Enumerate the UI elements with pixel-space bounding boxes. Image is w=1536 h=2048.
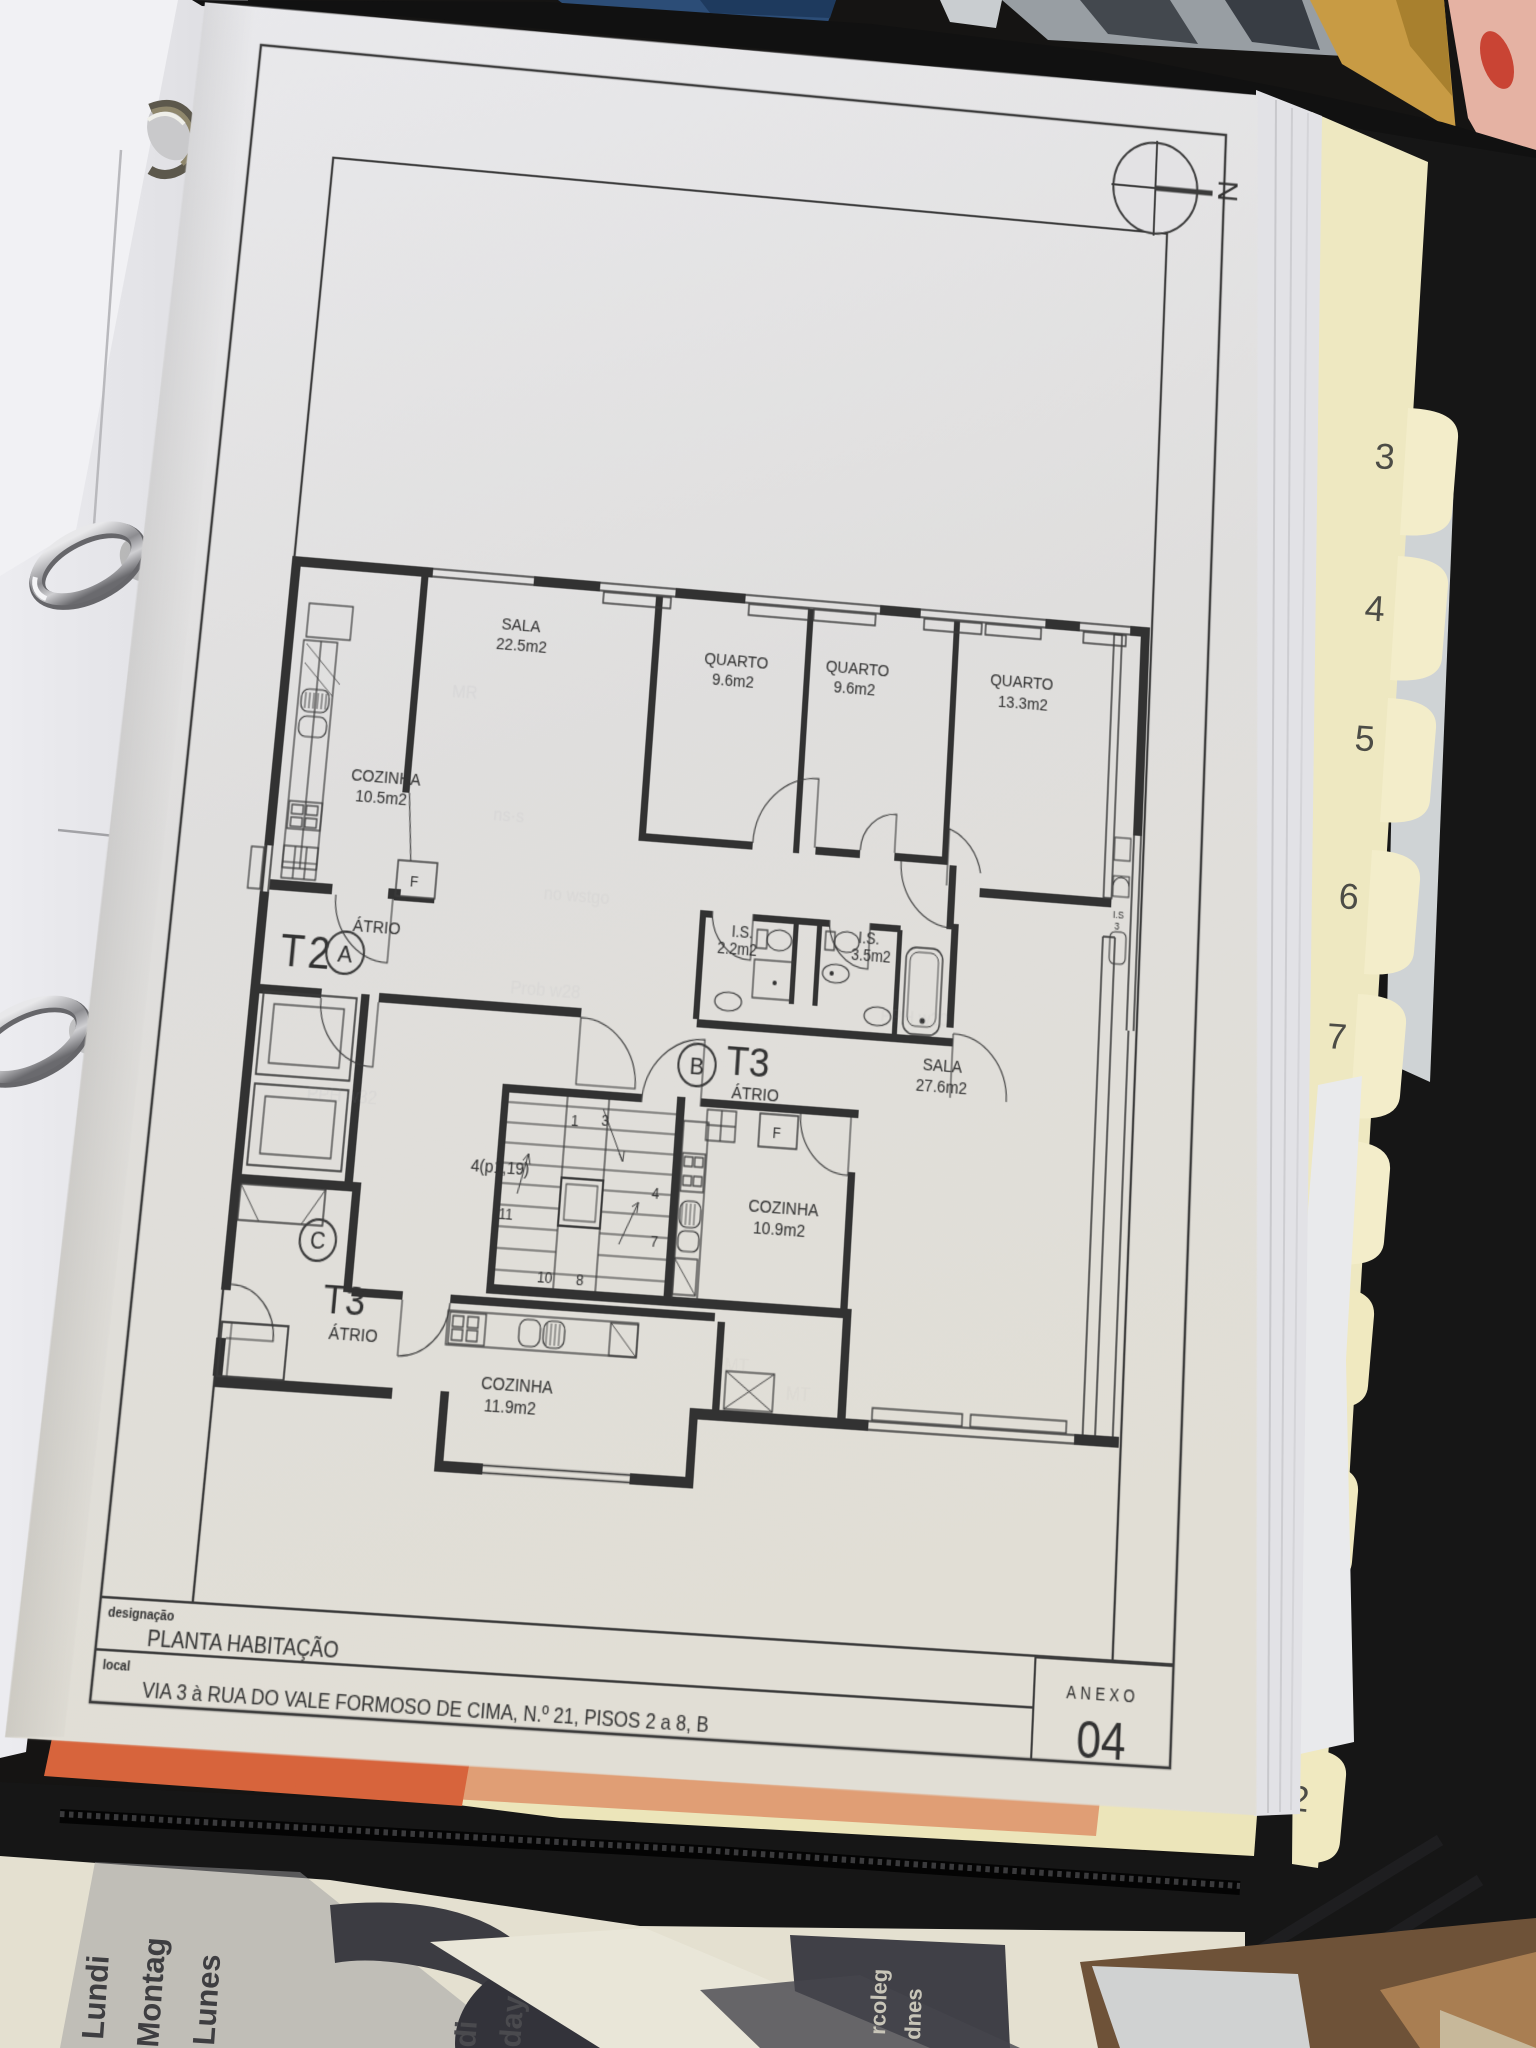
svg-text:local: local — [102, 1658, 131, 1675]
svg-text:11: 11 — [498, 1205, 514, 1224]
svg-text:ÁTRIO: ÁTRIO — [328, 1323, 379, 1347]
svg-text:4: 4 — [651, 1184, 660, 1202]
svg-text:4(p1,19): 4(p1,19) — [470, 1156, 530, 1180]
svg-text:10.9m2: 10.9m2 — [752, 1218, 805, 1242]
svg-text:3.5m2: 3.5m2 — [851, 946, 892, 967]
svg-text:I.S: I.S — [1113, 909, 1124, 921]
svg-text:MT: MT — [785, 1383, 811, 1406]
svg-text:ns·s: ns·s — [493, 804, 526, 827]
svg-text:10: 10 — [536, 1268, 553, 1287]
svg-text:T3: T3 — [725, 1036, 771, 1087]
svg-text:7: 7 — [650, 1232, 659, 1250]
svg-text:T3: T3 — [321, 1277, 367, 1326]
svg-text:Lunes: Lunes — [186, 1953, 227, 2047]
svg-text:11.9m2: 11.9m2 — [483, 1395, 537, 1419]
svg-text:day: day — [494, 1994, 531, 2048]
svg-text:3: 3 — [1373, 435, 1396, 477]
svg-text:22.5m2: 22.5m2 — [495, 635, 547, 658]
svg-text:9.6m2: 9.6m2 — [833, 678, 876, 700]
svg-text:ÁTRIO: ÁTRIO — [352, 916, 401, 939]
svg-text:ÁTRIO: ÁTRIO — [731, 1083, 780, 1106]
svg-text:1: 1 — [570, 1112, 579, 1130]
svg-text:9.6m2: 9.6m2 — [711, 670, 754, 692]
svg-text:3: 3 — [1114, 920, 1119, 932]
svg-text:Lundi: Lundi — [75, 1954, 116, 2041]
svg-text:27.6m2: 27.6m2 — [915, 1076, 967, 1099]
svg-text:5: 5 — [1353, 717, 1376, 759]
svg-text:8: 8 — [575, 1271, 584, 1289]
svg-text:4: 4 — [1363, 587, 1386, 629]
svg-text:04: 04 — [1075, 1710, 1127, 1773]
svg-text:2.2m2: 2.2m2 — [717, 939, 758, 960]
svg-text:N: N — [1211, 179, 1243, 203]
svg-text:F: F — [409, 873, 419, 891]
svg-text:SALA: SALA — [922, 1055, 963, 1078]
svg-text:C: C — [309, 1228, 327, 1255]
svg-text:10.5m2: 10.5m2 — [354, 787, 407, 810]
svg-text:dnes: dnes — [900, 1988, 927, 2040]
svg-text:MR: MR — [451, 682, 478, 704]
svg-text:F: F — [772, 1124, 781, 1142]
svg-text:7: 7 — [1325, 1015, 1348, 1057]
svg-text:13.3m2: 13.3m2 — [997, 692, 1048, 715]
svg-text:B: B — [689, 1052, 705, 1081]
svg-text:di: di — [449, 2020, 484, 2048]
svg-text:3: 3 — [601, 1111, 610, 1129]
svg-text:MT: MT — [724, 1354, 750, 1377]
svg-text:rcoleg: rcoleg — [865, 1968, 892, 2035]
svg-text:6: 6 — [1337, 875, 1360, 917]
svg-text:SALA: SALA — [501, 615, 542, 637]
